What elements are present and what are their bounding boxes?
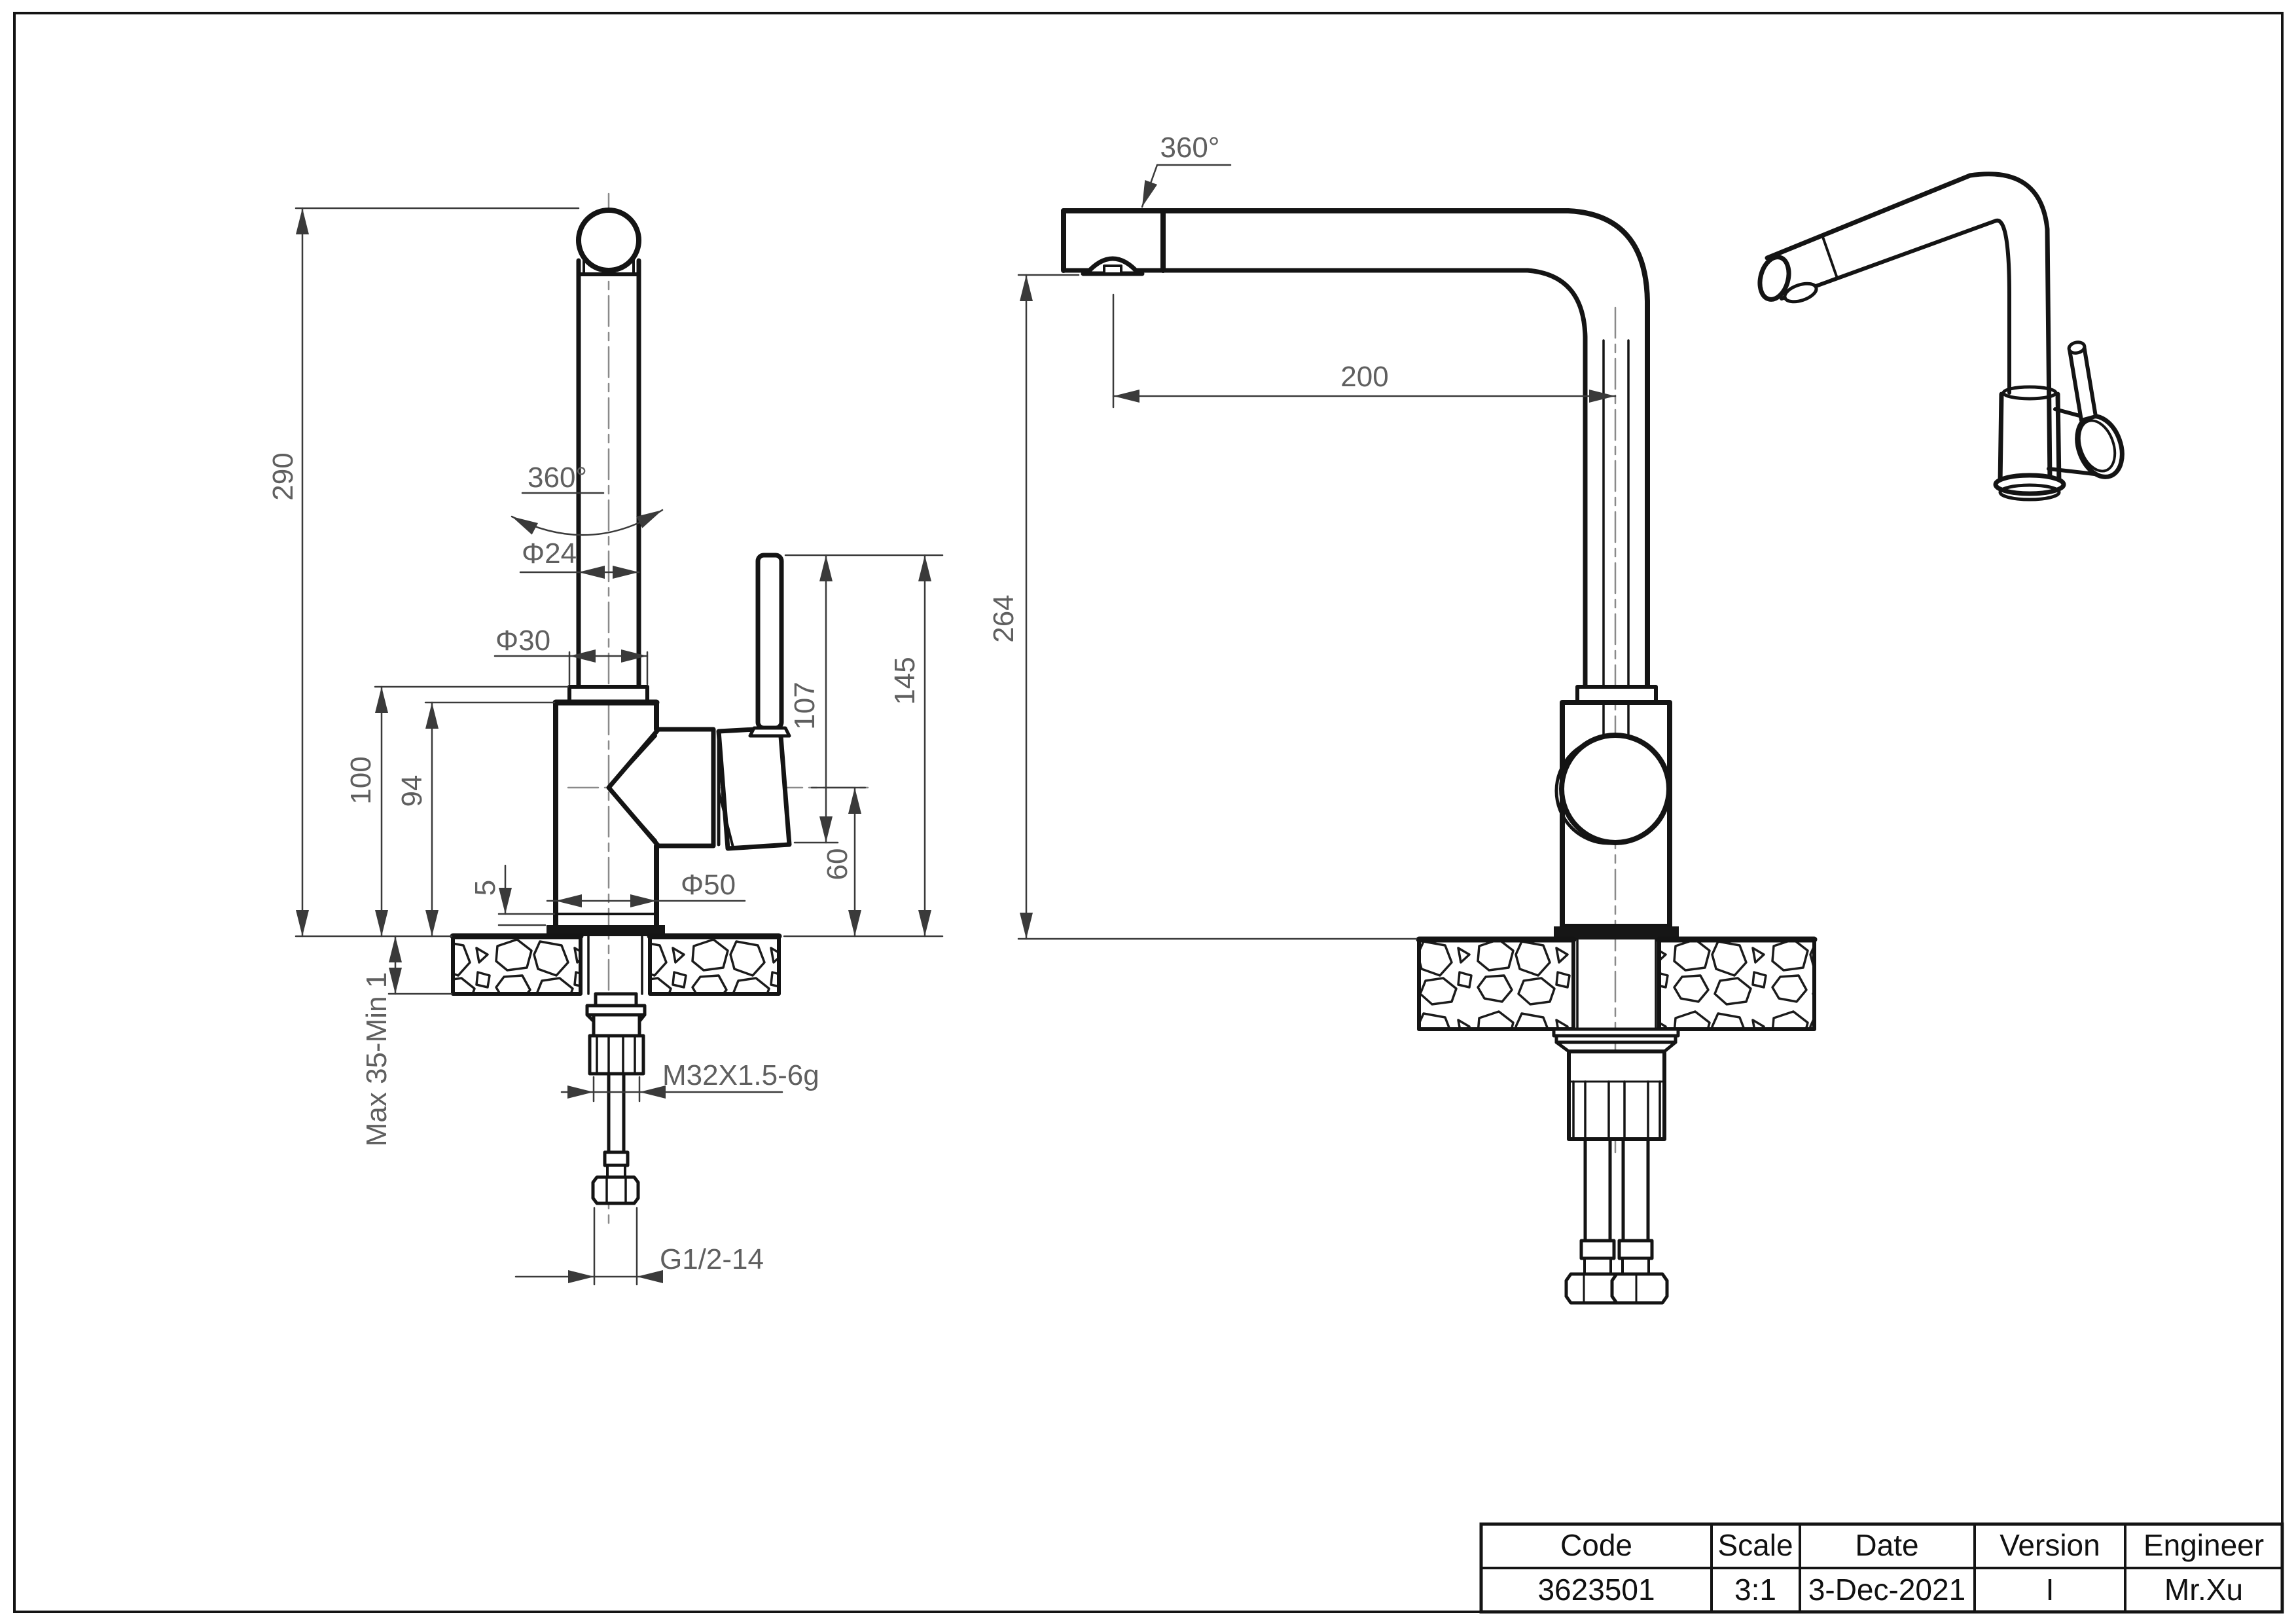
- title-header-code: Code: [1560, 1528, 1632, 1562]
- iso-spout-bend-inner: [1996, 221, 2009, 393]
- title-value-date: 3-Dec-2021: [1808, 1573, 1965, 1607]
- title-header-version: Version: [2000, 1528, 2100, 1562]
- handle-cone: [609, 729, 713, 846]
- dim-200-label: 200: [1340, 361, 1388, 393]
- title-header-scale: Scale: [1717, 1528, 1793, 1562]
- iso-tip-ring: [1823, 237, 1837, 276]
- dim-dia50-label: Φ50: [681, 869, 736, 901]
- title-block-headers: Code Scale Date Version Engineer: [1560, 1528, 2264, 1562]
- side-dim-lines: [1018, 165, 1615, 939]
- side-countertop: [1419, 939, 1814, 1029]
- sheet-border: [14, 13, 2282, 1612]
- dim-60-label: 60: [821, 848, 853, 881]
- drawing-sheet: 290 100 94 5 Max 35-Min 1 Φ24 Φ30 Φ50 36…: [0, 0, 2296, 1623]
- dim-hose-thread-label: G1/2-14: [660, 1243, 764, 1275]
- front-countertop: [453, 936, 779, 994]
- iso-spout-top: [1767, 175, 1970, 258]
- side-spout: [1064, 211, 1647, 739]
- drawing-canvas: 290 100 94 5 Max 35-Min 1 Φ24 Φ30 Φ50 36…: [0, 0, 2296, 1623]
- dim-dia24-label: Φ24: [522, 538, 577, 570]
- supply-hose: [593, 1074, 638, 1203]
- side-view: 200 264 360°: [988, 132, 1814, 1303]
- dim-145-label: 145: [889, 657, 921, 704]
- title-header-date: Date: [1855, 1528, 1918, 1562]
- dim-264-label: 264: [988, 594, 1020, 642]
- dim-dia30-label: Φ30: [495, 625, 550, 657]
- title-header-engineer: Engineer: [2144, 1528, 2264, 1562]
- dim-swivel-side-label: 360°: [1160, 132, 1219, 164]
- dim-100-label: 100: [345, 756, 377, 804]
- title-block: Code Scale Date Version Engineer 3623501…: [1481, 1524, 2282, 1612]
- mounting-shank: [587, 994, 645, 1074]
- front-view: 290 100 94 5 Max 35-Min 1 Φ24 Φ30 Φ50 36…: [267, 194, 942, 1285]
- iso-view: [1755, 174, 2130, 500]
- title-value-scale: 3:1: [1734, 1573, 1776, 1607]
- iso-lever: [2070, 346, 2096, 420]
- dim-107-label: 107: [789, 682, 821, 729]
- side-handle-joint: [1562, 735, 1669, 843]
- dim-deck-thickness-label: Max 35-Min 1: [361, 972, 393, 1147]
- side-dim-arrows: [1020, 180, 1615, 939]
- front-dim-lines: [296, 208, 942, 1285]
- spout-outlet-circle: [579, 210, 639, 270]
- side-supply-hoses: [1566, 1139, 1667, 1303]
- title-value-engineer: Mr.Xu: [2164, 1573, 2243, 1607]
- side-aerator: [1083, 259, 1142, 274]
- handle-lever: [758, 555, 781, 728]
- dim-thread-label: M32X1.5-6g: [662, 1059, 819, 1091]
- dim-94-label: 94: [396, 775, 428, 807]
- title-value-code: 3623501: [1537, 1573, 1655, 1607]
- dim-5-label: 5: [469, 880, 501, 896]
- title-block-values: 3623501 3:1 3-Dec-2021 I Mr.Xu: [1537, 1573, 2243, 1607]
- handle-lever-neck: [750, 728, 789, 736]
- dim-swivel-front-label: 360°: [528, 462, 587, 494]
- dim-290-label: 290: [267, 452, 299, 500]
- title-value-version: I: [2046, 1573, 2054, 1607]
- iso-body-left: [2000, 394, 2001, 483]
